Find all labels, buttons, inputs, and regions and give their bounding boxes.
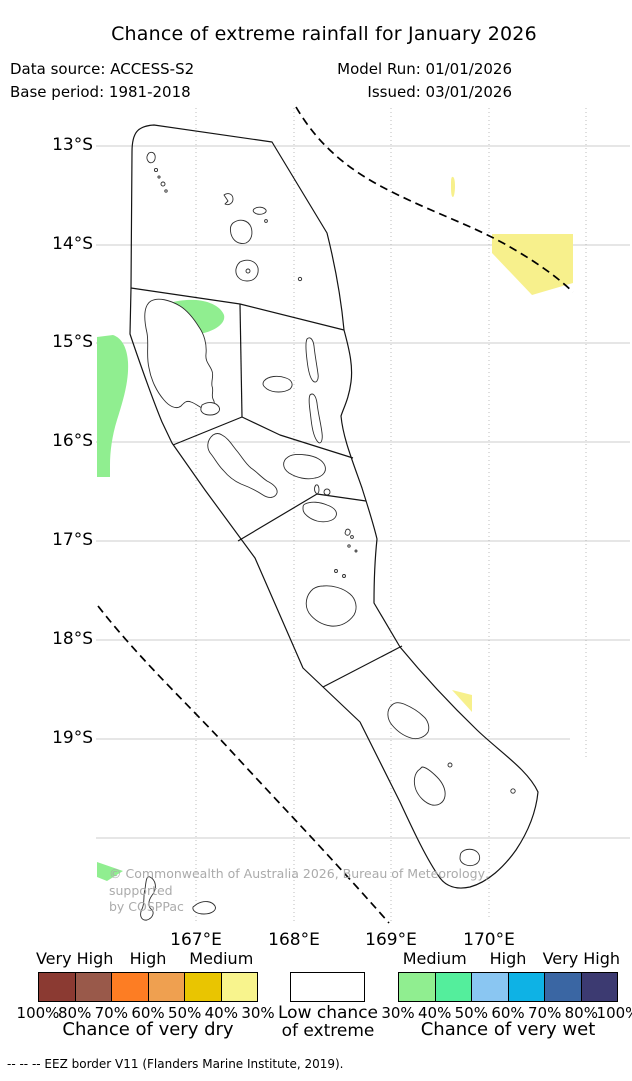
legend-color-cell (112, 973, 149, 1001)
wet-category-label: Medium (403, 949, 467, 968)
dry-legend-percents: 100%80%70%60%50%40%30% (38, 1004, 258, 1020)
island-shepherd-islet (351, 536, 354, 539)
very-wet-patch-west-coast (97, 335, 128, 477)
latitude-tick-label: 15°S (52, 332, 93, 352)
island-outlines (141, 152, 516, 920)
island-efate (306, 586, 356, 626)
vanuatu-rainfall-map (0, 0, 632, 1081)
island-futuna (511, 789, 515, 793)
island-torres-group (147, 152, 155, 162)
island-mota (265, 220, 268, 223)
wet-category-label: Very High (543, 949, 620, 968)
island-erromango (388, 703, 429, 739)
island-vanua-lava (230, 220, 252, 243)
dry-colorbar (38, 972, 258, 1002)
longitude-tick-label: 169°E (365, 930, 417, 950)
island-mere-lava (298, 277, 301, 280)
latitude-tick-label: 16°S (52, 431, 93, 451)
legend-color-cell (436, 973, 473, 1001)
dry-category-label: Very High (36, 949, 113, 968)
eez-border-note: -- -- -- EEZ border V11 (Flanders Marine… (7, 1057, 344, 1071)
region-outer-boundary (130, 125, 538, 888)
island-malo (201, 403, 220, 415)
wet-category-label: High (490, 949, 527, 968)
dry-category-label: High (130, 949, 167, 968)
island-shepherd-islet (355, 550, 357, 552)
island-epi (303, 502, 336, 522)
region-divider-santo-west (173, 417, 242, 445)
copyright-notice: © Commonwealth of Australia 2026, Bureau… (109, 866, 549, 916)
island-torres-islet (158, 176, 160, 178)
legend-color-cell (509, 973, 546, 1001)
island-aneityum (460, 849, 480, 865)
island-ureparapara (224, 194, 233, 205)
legend-color-cell (582, 973, 618, 1001)
island-aniwa (448, 763, 452, 767)
island-torres-islet (154, 168, 157, 171)
weather-outlook-page: Chance of extreme rainfall for January 2… (0, 0, 632, 1081)
wet-colorbar (398, 972, 618, 1002)
island-shepherd (345, 529, 350, 535)
island-malakula (208, 434, 277, 498)
region-divider-efate-south (323, 646, 402, 687)
dry-legend-categories: Very HighHighMedium (38, 949, 258, 965)
longitude-tick-label: 168°E (268, 930, 320, 950)
longitude-gridlines (196, 108, 586, 924)
island-gaua (236, 260, 258, 281)
legend-color-cell (399, 973, 436, 1001)
wet-legend-categories: MediumHighVery High (398, 949, 618, 965)
island-nguna (335, 570, 338, 573)
latitude-tick-label: 13°S (52, 135, 93, 155)
island-paama (315, 485, 320, 494)
island-ambrym (284, 454, 326, 478)
outlook-patches (97, 177, 573, 881)
legend-color-cell (39, 973, 76, 1001)
longitude-tick-label: 167°E (170, 930, 222, 950)
island-torres-islet (165, 190, 167, 192)
legend-color-cell (185, 973, 222, 1001)
island-maewo (306, 338, 318, 382)
low-chance-line-1: Low chance (276, 1005, 380, 1023)
island-lopevi (324, 489, 330, 495)
copyright-line-2: by COSPPac (109, 899, 549, 916)
copyright-line-1: © Commonwealth of Australia 2026, Bureau… (109, 866, 549, 899)
low-chance-swatch (290, 972, 365, 1002)
island-ambae (263, 376, 292, 392)
island-tanna (414, 767, 445, 805)
forecast-region-boundaries (130, 125, 538, 888)
island-emao (343, 575, 346, 578)
region-divider-santo-penama (240, 304, 242, 417)
low-chance-label: Low chance of extreme (276, 1005, 380, 1040)
dry-category-label: Medium (189, 949, 253, 968)
legend-color-cell (222, 973, 258, 1001)
legend-color-cell (76, 973, 113, 1001)
island-pentecost (309, 394, 322, 443)
legend-color-cell (545, 973, 582, 1001)
wet-legend-caption: Chance of very wet (398, 1019, 618, 1040)
legend-color-cell (472, 973, 509, 1001)
low-chance-line-2: of extreme (276, 1023, 380, 1041)
island-mota-lava (253, 207, 266, 214)
wet-legend-percents: 30%40%50%60%70%80%100% (398, 1004, 618, 1020)
latitude-tick-label: 17°S (52, 530, 93, 550)
legend-color-cell (149, 973, 186, 1001)
latitude-tick-label: 18°S (52, 629, 93, 649)
very-dry-patch-sliver (451, 177, 455, 197)
latitude-tick-label: 19°S (52, 728, 93, 748)
longitude-tick-label: 170°E (463, 930, 515, 950)
latitude-tick-label: 14°S (52, 234, 93, 254)
region-divider-penama-south (242, 417, 353, 458)
island-shepherd-islet (348, 545, 350, 547)
island-torres-islet (161, 182, 165, 186)
dry-legend-caption: Chance of very dry (38, 1019, 258, 1040)
